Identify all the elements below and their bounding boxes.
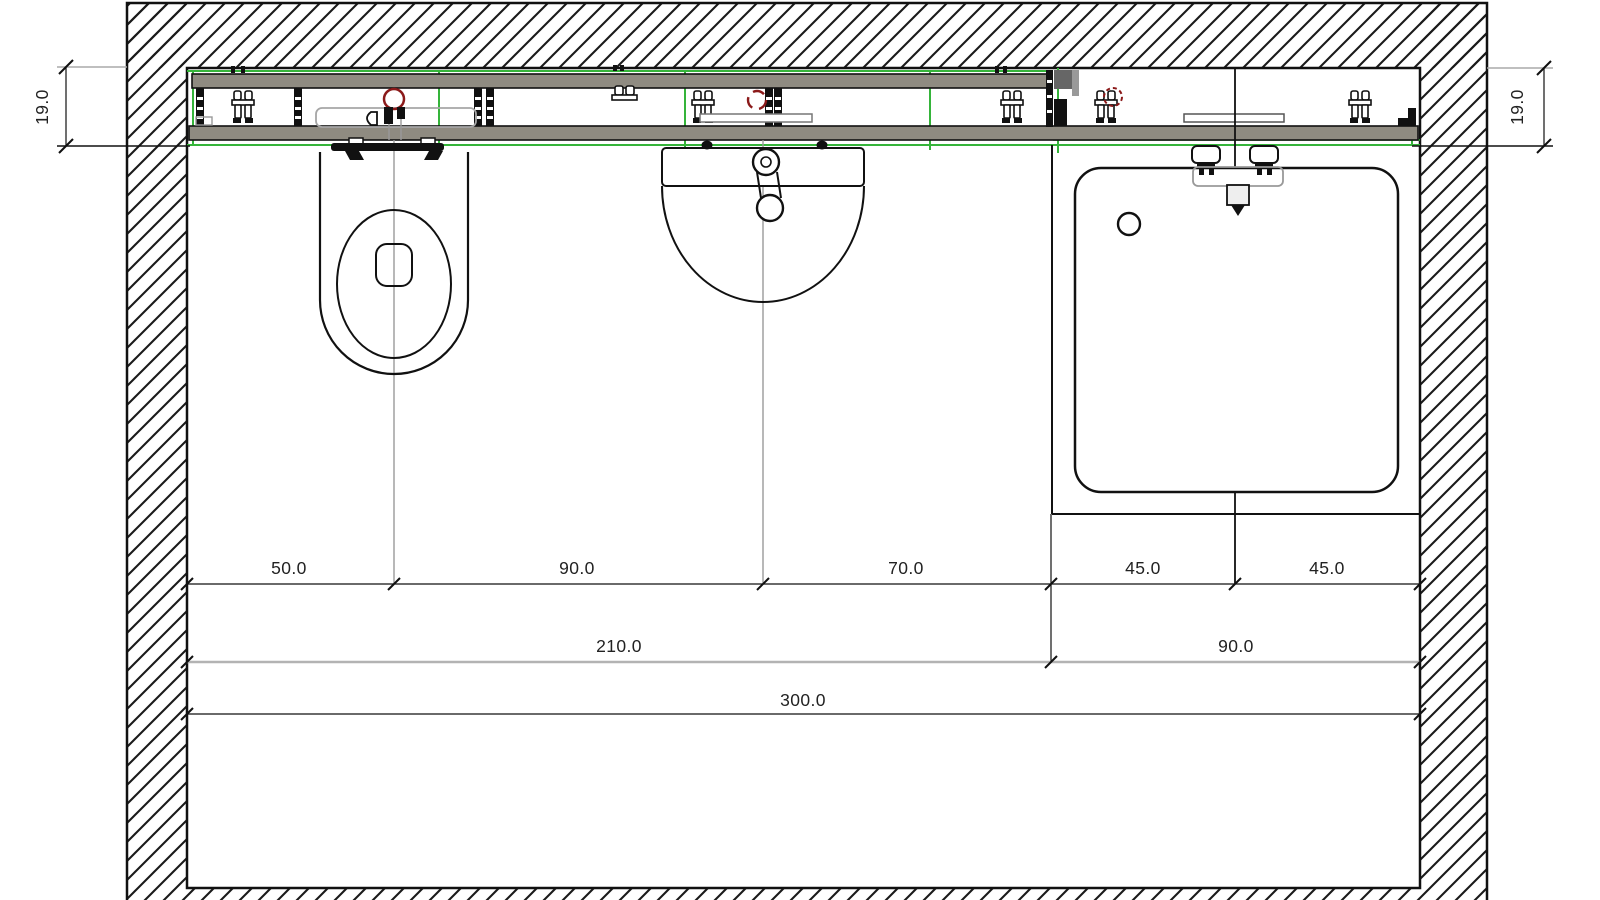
basin-fixing-dot xyxy=(702,141,713,150)
dim-label-45a: 45.0 xyxy=(1125,558,1161,578)
floor-plan-drawing: 50.0 90.0 70.0 45.0 45.0 210.0 90.0 300.… xyxy=(0,0,1600,900)
dim-label-19-left: 19.0 xyxy=(32,89,52,125)
wall-left xyxy=(127,3,187,900)
dim-label-90: 90.0 xyxy=(559,558,595,578)
dim-label-90b: 90.0 xyxy=(1218,636,1254,656)
basin-mounting-plate xyxy=(700,114,812,122)
basin-fixing-dot xyxy=(817,141,828,150)
rail-upright xyxy=(196,88,204,126)
rail-upright xyxy=(294,88,302,126)
dim-label-45b: 45.0 xyxy=(1309,558,1345,578)
shower-rail-plate xyxy=(1184,114,1284,122)
rail-bottom-profile xyxy=(189,126,1418,140)
wall-top xyxy=(127,3,1487,68)
wall-bottom xyxy=(187,888,1420,900)
dim-label-70: 70.0 xyxy=(888,558,924,578)
dim-label-210: 210.0 xyxy=(596,636,642,656)
dim-label-50: 50.0 xyxy=(271,558,307,578)
rail-upright xyxy=(486,88,494,126)
shower-tray xyxy=(1075,168,1398,492)
wall-right xyxy=(1420,3,1487,900)
cad-canvas: 50.0 90.0 70.0 45.0 45.0 210.0 90.0 300.… xyxy=(0,0,1600,900)
dim-label-300: 300.0 xyxy=(780,690,826,710)
dim-label-19-right: 19.0 xyxy=(1507,89,1527,125)
